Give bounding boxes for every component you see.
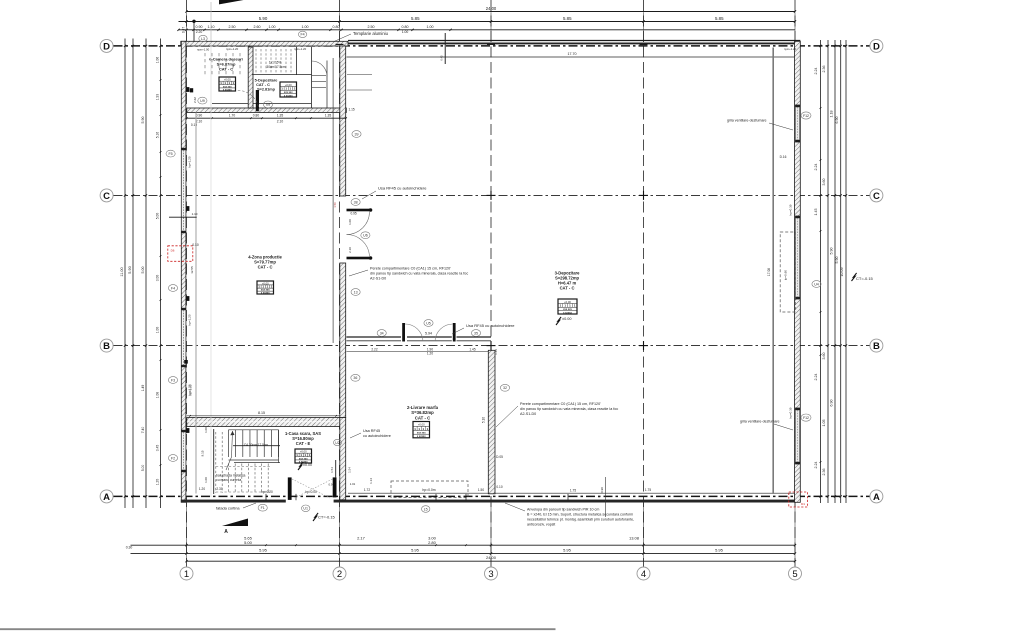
svg-text:2.30: 2.30 bbox=[216, 487, 222, 491]
svg-text:A: A bbox=[224, 529, 228, 535]
svg-text:F2: F2 bbox=[171, 456, 175, 460]
svg-text:2.50: 2.50 bbox=[229, 25, 236, 29]
svg-text:3.45: 3.45 bbox=[156, 445, 160, 452]
svg-text:1x17,5%: 1x17,5% bbox=[269, 61, 282, 65]
svg-text:nym+1.00: nym+1.00 bbox=[197, 48, 210, 52]
svg-text:1.00: 1.00 bbox=[204, 477, 208, 483]
svg-text:A: A bbox=[103, 492, 110, 503]
svg-text:F4: F4 bbox=[300, 33, 304, 37]
svg-text:1.00: 1.00 bbox=[348, 219, 352, 225]
svg-text:5.00: 5.00 bbox=[141, 465, 145, 472]
svg-text:CAT - C: CAT - C bbox=[219, 67, 233, 72]
svg-text:1.49: 1.49 bbox=[141, 385, 145, 392]
svg-text:U8: U8 bbox=[266, 103, 271, 107]
svg-text:5.95: 5.95 bbox=[411, 548, 420, 553]
svg-text:2.24: 2.24 bbox=[814, 462, 818, 469]
svg-text:2.36: 2.36 bbox=[822, 66, 826, 73]
svg-text:1.14: 1.14 bbox=[369, 478, 373, 484]
svg-text:36: 36 bbox=[353, 376, 357, 380]
svg-text:5.90: 5.90 bbox=[259, 16, 268, 21]
svg-text:F3: F3 bbox=[171, 378, 175, 382]
svg-text:B: B bbox=[873, 341, 880, 352]
svg-text:1.72: 1.72 bbox=[364, 488, 370, 492]
svg-text:0.90: 0.90 bbox=[196, 113, 203, 117]
svg-text:Templarie aluminiu: Templarie aluminiu bbox=[353, 31, 389, 36]
svg-text:F4: F4 bbox=[171, 286, 175, 290]
svg-text:xxx xxx: xxx xxx bbox=[417, 432, 426, 435]
svg-text:CAT - C: CAT - C bbox=[560, 286, 575, 291]
svg-text:F1: F1 bbox=[261, 506, 265, 510]
svg-text:B: B bbox=[103, 341, 110, 352]
svg-text:necesitatilor tehnice pt. mont: necesitatilor tehnice pt. montaj, asambl… bbox=[527, 518, 634, 522]
svg-text:5.85: 5.85 bbox=[411, 16, 420, 21]
svg-text:1.01: 1.01 bbox=[350, 482, 356, 486]
svg-text:Usa RF45 cu autoinchidere: Usa RF45 cu autoinchidere bbox=[378, 186, 427, 191]
svg-text:CAT - C: CAT - C bbox=[415, 415, 430, 420]
svg-text:hp=0.39: hp=0.39 bbox=[789, 407, 793, 418]
svg-text:A2-S1-D0: A2-S1-D0 bbox=[370, 277, 386, 281]
svg-text:0.47: 0.47 bbox=[181, 27, 185, 33]
svg-text:L3: L3 bbox=[201, 37, 205, 41]
svg-text:1.35: 1.35 bbox=[325, 113, 332, 117]
svg-text:U6: U6 bbox=[363, 234, 368, 238]
svg-text:U5: U5 bbox=[426, 321, 431, 325]
svg-text:1.45: 1.45 bbox=[814, 209, 818, 216]
svg-text:7.40: 7.40 bbox=[141, 427, 145, 434]
svg-text:anticoroziv, vopsit: anticoroziv, vopsit bbox=[527, 523, 555, 527]
svg-text:din panou tip sandwich cu vata: din panou tip sandwich cu vata minerala,… bbox=[370, 272, 468, 276]
svg-text:U1: U1 bbox=[303, 507, 308, 511]
svg-text:balustrada metalica: balustrada metalica bbox=[216, 474, 246, 478]
svg-text:U9: U9 bbox=[200, 99, 205, 103]
svg-text:C: C bbox=[873, 191, 880, 202]
svg-text:L5: L5 bbox=[424, 507, 428, 511]
svg-text:CT=-0.15: CT=-0.15 bbox=[856, 276, 874, 281]
svg-text:2.20: 2.20 bbox=[196, 30, 203, 34]
svg-text:5.16: 5.16 bbox=[156, 132, 160, 139]
svg-text:2.24: 2.24 bbox=[814, 68, 818, 75]
svg-text:A2-S1-D0: A2-S1-D0 bbox=[520, 412, 536, 416]
svg-text:5.85: 5.85 bbox=[563, 16, 572, 21]
svg-text:5.95: 5.95 bbox=[259, 548, 268, 553]
svg-text:1.00: 1.00 bbox=[204, 427, 208, 433]
svg-text:D.05: D.05 bbox=[496, 455, 503, 459]
svg-text:8.15: 8.15 bbox=[258, 411, 265, 415]
svg-text:D: D bbox=[873, 41, 880, 52]
svg-text:34: 34 bbox=[380, 331, 384, 335]
svg-text:2.50: 2.50 bbox=[368, 25, 375, 29]
svg-text:x xxxxx: x xxxxx bbox=[284, 94, 293, 97]
svg-text:1.70: 1.70 bbox=[229, 113, 236, 117]
svg-text:5.95: 5.95 bbox=[715, 548, 724, 553]
svg-text:24.00: 24.00 bbox=[486, 555, 497, 560]
svg-text:17.70: 17.70 bbox=[568, 52, 577, 56]
svg-text:9.15: 9.15 bbox=[201, 450, 205, 456]
svg-text:hp=0.20: hp=0.20 bbox=[261, 490, 273, 494]
svg-text:±0.00: ±0.00 bbox=[562, 317, 571, 321]
svg-text:hp=1.20: hp=1.20 bbox=[188, 156, 192, 168]
svg-text:nym+1.20: nym+1.20 bbox=[226, 47, 239, 51]
svg-text:1.00: 1.00 bbox=[402, 30, 409, 34]
svg-text:hp=0.00: hp=0.00 bbox=[305, 490, 317, 494]
svg-text:D: D bbox=[103, 41, 110, 52]
svg-text:12.55: 12.55 bbox=[190, 266, 194, 274]
svg-text:1.20: 1.20 bbox=[427, 351, 433, 355]
svg-text:U4: U4 bbox=[814, 282, 819, 286]
svg-text:5.00: 5.00 bbox=[156, 213, 160, 220]
svg-text:0.80: 0.80 bbox=[253, 113, 260, 117]
svg-text:1.20: 1.20 bbox=[156, 479, 160, 486]
svg-text:fatada cortina: fatada cortina bbox=[216, 506, 240, 511]
svg-text:3.60: 3.60 bbox=[822, 353, 826, 360]
svg-text:5.90: 5.90 bbox=[835, 257, 839, 264]
svg-text:3: 3 bbox=[488, 569, 493, 580]
svg-text:Usa RF45 cu autoinchidere: Usa RF45 cu autoinchidere bbox=[466, 323, 515, 328]
svg-text:2.80: 2.80 bbox=[428, 540, 437, 545]
svg-text:x xxxxx: x xxxxx bbox=[261, 291, 270, 294]
svg-text:1.06: 1.06 bbox=[156, 57, 160, 64]
svg-text:hp=1.20: hp=1.20 bbox=[188, 314, 192, 326]
svg-text:2.22: 2.22 bbox=[371, 347, 377, 351]
svg-text:A: A bbox=[873, 492, 880, 503]
svg-text:2.17: 2.17 bbox=[357, 536, 366, 541]
svg-text:5.90: 5.90 bbox=[829, 248, 833, 255]
svg-text:lp=0.60: lp=0.60 bbox=[784, 270, 788, 281]
svg-text:6.90: 6.90 bbox=[835, 117, 839, 124]
svg-text:1: 1 bbox=[184, 569, 189, 580]
svg-text:2.36: 2.36 bbox=[822, 469, 826, 476]
svg-text:5-Depozitare: 5-Depozitare bbox=[255, 79, 278, 83]
svg-text:10.09: 10.09 bbox=[840, 268, 844, 277]
svg-text:S=2.81mp: S=2.81mp bbox=[257, 88, 276, 92]
svg-text:4: 4 bbox=[641, 569, 646, 580]
svg-text:F5: F5 bbox=[168, 152, 172, 156]
svg-text:CA 30cm 17.5cm: CA 30cm 17.5cm bbox=[244, 443, 269, 447]
svg-text:17.08: 17.08 bbox=[767, 268, 771, 276]
svg-text:Anvelopa din panouri tip sandw: Anvelopa din panouri tip sandwich PIR 10… bbox=[527, 508, 599, 512]
svg-text:F12: F12 bbox=[803, 416, 809, 420]
svg-text:C: C bbox=[103, 191, 110, 202]
svg-text:0.90: 0.90 bbox=[196, 25, 203, 29]
svg-text:0.90: 0.90 bbox=[600, 487, 604, 493]
svg-text:1.93: 1.93 bbox=[156, 94, 160, 101]
svg-text:35: 35 bbox=[474, 331, 478, 335]
svg-text:x xxxxx: x xxxxx bbox=[563, 311, 572, 314]
svg-text:5.90: 5.90 bbox=[141, 117, 145, 124]
svg-text:5.94: 5.94 bbox=[425, 332, 432, 336]
svg-text:5.10: 5.10 bbox=[482, 417, 486, 423]
svg-text:2: 2 bbox=[337, 569, 342, 580]
svg-text:0.80: 0.80 bbox=[402, 25, 409, 29]
svg-text:cu mana curenta: cu mana curenta bbox=[216, 478, 241, 482]
svg-text:nym+1.20: nym+1.20 bbox=[294, 47, 307, 51]
svg-text:nym+1.20: nym+1.20 bbox=[784, 47, 797, 51]
svg-text:11.00: 11.00 bbox=[120, 267, 124, 276]
svg-text:1.00: 1.00 bbox=[156, 327, 160, 334]
svg-text:5.00: 5.00 bbox=[244, 540, 253, 545]
svg-text:3.60: 3.60 bbox=[822, 179, 826, 186]
svg-text:2.10: 2.10 bbox=[348, 247, 352, 253]
svg-text:x xxxxx: x xxxxx bbox=[417, 435, 426, 438]
svg-text:1.00: 1.00 bbox=[302, 25, 309, 29]
svg-text:5: 5 bbox=[792, 569, 797, 580]
svg-text:2.10: 2.10 bbox=[277, 119, 284, 123]
svg-text:1.54: 1.54 bbox=[348, 467, 352, 473]
svg-text:1.50: 1.50 bbox=[478, 488, 484, 492]
svg-text:CAT - C: CAT - C bbox=[258, 265, 273, 270]
svg-text:U2: U2 bbox=[335, 441, 340, 445]
svg-text:CT=-0.15: CT=-0.15 bbox=[318, 515, 336, 520]
svg-text:1.45: 1.45 bbox=[469, 347, 475, 351]
svg-text:B = x240, EI 15 min, Suport, s: B = x240, EI 15 min, Suport, structura m… bbox=[527, 513, 633, 517]
svg-text:D1: D1 bbox=[801, 502, 805, 506]
svg-text:hp=0.39: hp=0.39 bbox=[789, 204, 793, 215]
svg-text:13.08: 13.08 bbox=[629, 536, 640, 541]
svg-text:1.15: 1.15 bbox=[349, 108, 355, 112]
svg-text:6.90: 6.90 bbox=[829, 400, 833, 407]
svg-text:2.60: 2.60 bbox=[254, 25, 261, 29]
svg-text:±0.00: ±0.00 bbox=[303, 463, 312, 467]
svg-text:39: 39 bbox=[355, 132, 359, 136]
svg-text:0.95: 0.95 bbox=[351, 212, 357, 216]
svg-text:CAT - E: CAT - E bbox=[296, 441, 311, 446]
svg-text:1.00: 1.00 bbox=[269, 25, 276, 29]
svg-text:1.10: 1.10 bbox=[192, 212, 198, 216]
svg-text:D6: D6 bbox=[171, 249, 175, 253]
svg-text:0.45: 0.45 bbox=[440, 55, 444, 61]
svg-text:0.10: 0.10 bbox=[192, 243, 199, 247]
svg-text:13: 13 bbox=[354, 290, 358, 294]
svg-text:1.05: 1.05 bbox=[822, 420, 826, 427]
svg-text:grila ventilare-dezfumare: grila ventilare-dezfumare bbox=[727, 119, 767, 123]
svg-text:2.24: 2.24 bbox=[814, 164, 818, 171]
svg-text:5.90: 5.90 bbox=[128, 266, 132, 273]
svg-text:38: 38 bbox=[354, 200, 358, 204]
svg-text:grila ventilare-dezfumare: grila ventilare-dezfumare bbox=[740, 420, 780, 424]
svg-text:Perete compartimentare C0 (CA1: Perete compartimentare C0 (CA1) 15 cm, R… bbox=[520, 402, 601, 406]
svg-text:5.00: 5.00 bbox=[141, 267, 145, 274]
svg-text:hp=1.20: hp=1.20 bbox=[189, 384, 193, 395]
svg-text:1.20: 1.20 bbox=[199, 487, 205, 491]
svg-text:2.62: 2.62 bbox=[193, 97, 197, 103]
svg-text:Usa RF45: Usa RF45 bbox=[363, 429, 380, 433]
svg-text:CAT - C: CAT - C bbox=[256, 83, 270, 87]
svg-text:0.9: 0.9 bbox=[329, 483, 333, 487]
svg-text:0.30: 0.30 bbox=[126, 546, 133, 550]
svg-text:din panou tip sandwich cu vata: din panou tip sandwich cu vata minerala,… bbox=[520, 407, 618, 411]
svg-text:3.00: 3.00 bbox=[156, 275, 160, 282]
svg-text:5.85: 5.85 bbox=[715, 16, 724, 21]
svg-text:5.95: 5.95 bbox=[563, 548, 572, 553]
svg-text:1.75: 1.75 bbox=[570, 489, 576, 493]
svg-text:1.45: 1.45 bbox=[494, 349, 498, 355]
svg-text:1.75: 1.75 bbox=[645, 488, 651, 492]
svg-text:0.80: 0.80 bbox=[333, 25, 340, 29]
svg-text:2.24: 2.24 bbox=[814, 374, 818, 381]
svg-text:1.00: 1.00 bbox=[427, 25, 434, 29]
svg-text:hp=0.0m: hp=0.0m bbox=[422, 488, 435, 492]
svg-text:30cm/17.5cm: 30cm/17.5cm bbox=[266, 65, 285, 69]
svg-text:32: 32 bbox=[503, 386, 507, 390]
svg-text:x xxxxx: x xxxxx bbox=[223, 88, 232, 91]
svg-text:1.35: 1.35 bbox=[277, 113, 284, 117]
svg-text:24.00: 24.00 bbox=[486, 6, 497, 11]
svg-text:1.54: 1.54 bbox=[330, 467, 334, 473]
svg-text:1.18: 1.18 bbox=[829, 111, 833, 118]
svg-text:1.08: 1.08 bbox=[156, 392, 160, 399]
svg-text:F12: F12 bbox=[803, 114, 809, 118]
svg-text:Perete compartimentare C0 (CA1: Perete compartimentare C0 (CA1) 15 cm, R… bbox=[370, 267, 451, 271]
svg-text:0.10: 0.10 bbox=[496, 485, 502, 489]
svg-text:D.16: D.16 bbox=[780, 155, 787, 159]
svg-text:cu autoinchidere: cu autoinchidere bbox=[363, 434, 391, 438]
svg-text:1.50: 1.50 bbox=[333, 202, 337, 208]
